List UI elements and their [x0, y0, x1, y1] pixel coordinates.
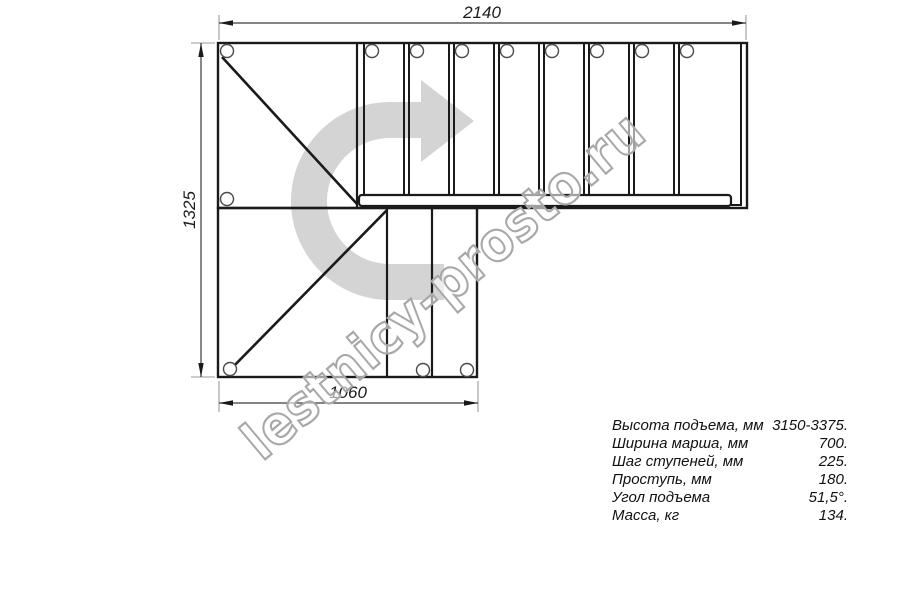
spec-row: Ширина марша, мм 700.	[612, 435, 848, 453]
spec-value: 225.	[819, 453, 848, 471]
dimension-top: 2140	[219, 3, 746, 40]
spec-label: Масса, кг	[612, 507, 679, 525]
dimension-label-top: 2140	[462, 3, 501, 22]
dim-arrowhead-up	[198, 43, 203, 57]
spec-label: Угол подъема	[612, 489, 710, 507]
dim-arrowhead-left	[219, 400, 233, 405]
mounting-hole	[546, 45, 559, 58]
staircase-drawing-page: 2140 1325 1060 lestnicy-prosto.ru Высота…	[0, 0, 900, 600]
spec-row: Угол подъема 51,5°.	[612, 489, 848, 507]
tread-box	[634, 43, 674, 205]
spec-label: Проступь, мм	[612, 471, 712, 489]
mounting-hole	[221, 193, 234, 206]
mounting-hole	[461, 364, 474, 377]
spec-row: Шаг ступеней, мм 225.	[612, 453, 848, 471]
dimension-left: 1325	[180, 43, 215, 377]
watermark-text: lestnicy-prosto.ru	[230, 99, 657, 472]
mounting-hole	[221, 45, 234, 58]
dimension-label-left: 1325	[180, 191, 199, 229]
mounting-hole	[591, 45, 604, 58]
mounting-hole	[681, 45, 694, 58]
mounting-holes	[221, 45, 694, 377]
dim-arrowhead-left	[219, 20, 233, 25]
specs-table: Высота подъема, мм 3150-3375. Ширина мар…	[612, 417, 848, 525]
spec-value: 134.	[819, 507, 848, 525]
spec-value: 3150-3375.	[772, 417, 848, 435]
mounting-hole	[411, 45, 424, 58]
dim-arrowhead-down	[198, 363, 203, 377]
spec-value: 180.	[819, 471, 848, 489]
mounting-hole	[417, 364, 430, 377]
spec-label: Шаг ступеней, мм	[612, 453, 743, 471]
spec-value: 700.	[819, 435, 848, 453]
spec-row: Высота подъема, мм 3150-3375.	[612, 417, 848, 435]
spec-row: Масса, кг 134.	[612, 507, 848, 525]
spec-label: Высота подъема, мм	[612, 417, 764, 435]
dim-arrowhead-right	[732, 20, 746, 25]
mounting-hole	[366, 45, 379, 58]
mounting-hole	[636, 45, 649, 58]
spec-value: 51,5°.	[809, 489, 848, 507]
spec-row: Проступь, мм 180.	[612, 471, 848, 489]
dim-arrowhead-right	[464, 400, 478, 405]
mounting-hole	[456, 45, 469, 58]
mounting-hole	[224, 363, 237, 376]
top-platform-box	[679, 43, 741, 205]
spec-label: Ширина марша, мм	[612, 435, 748, 453]
mounting-hole	[501, 45, 514, 58]
